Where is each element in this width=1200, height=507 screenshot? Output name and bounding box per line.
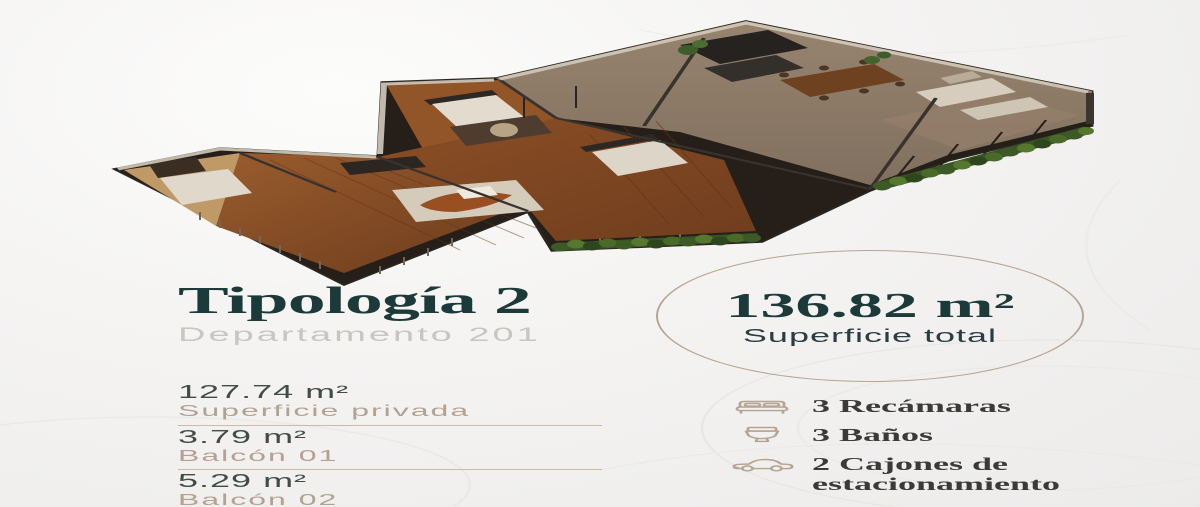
stretched-canvas: Tipología 2 Departamento 201 127.74 m² S… <box>0 0 1200 507</box>
total-area-label: Superficie total <box>743 327 997 345</box>
balcony-02-value: 5.29 m² <box>178 472 602 491</box>
area-row-balcony-01: 3.79 m² Balcón 01 <box>178 426 602 471</box>
typology-header: Tipología 2 Departamento 201 <box>178 282 610 347</box>
typology-title: Tipología 2 <box>178 282 610 322</box>
bathrooms-text: 3 Baños <box>812 425 933 445</box>
balcony-01-label: Balcón 01 <box>178 449 602 466</box>
total-area-value: 136.82 m² <box>725 288 1014 323</box>
parking-text: 2 Cajones de estacionamiento <box>812 454 1102 494</box>
unit-subtitle: Departamento 201 <box>178 326 610 347</box>
balcony-02-label: Balcón 02 <box>178 493 602 507</box>
toilet-icon <box>728 426 796 444</box>
area-breakdown-list: 127.74 m² Superficie privada 3.79 m² Bal… <box>178 381 602 507</box>
total-area-badge: 136.82 m² Superficie total <box>656 250 1084 382</box>
area-row-balcony-02: 5.29 m² Balcón 02 <box>178 470 602 507</box>
amenity-bedrooms: 3 Recámaras <box>728 396 1128 416</box>
car-icon <box>728 456 796 472</box>
area-row-private: 127.74 m² Superficie privada <box>178 381 602 426</box>
private-area-label: Superficie privada <box>178 404 602 421</box>
amenity-bathrooms: 3 Baños <box>728 425 1128 445</box>
private-area-value: 127.74 m² <box>178 383 602 402</box>
flyer-page: Tipología 2 Departamento 201 127.74 m² S… <box>0 0 1200 507</box>
amenities-list: 3 Recámaras 3 Baños <box>728 396 1128 504</box>
balcony-01-value: 3.79 m² <box>178 428 602 447</box>
amenity-parking: 2 Cajones de estacionamiento <box>728 454 1128 494</box>
bed-icon <box>728 399 796 414</box>
bedrooms-text: 3 Recámaras <box>812 396 1011 416</box>
